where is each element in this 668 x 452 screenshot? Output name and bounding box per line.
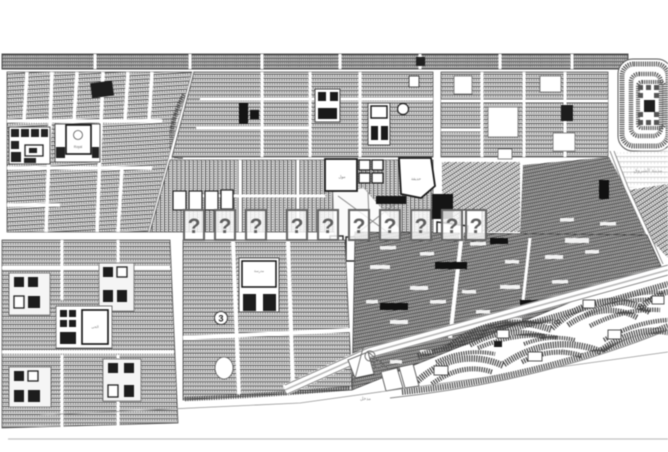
svg-text:?: ? — [188, 215, 201, 238]
svg-text:?: ? — [250, 215, 263, 238]
svg-text:?: ? — [322, 215, 335, 238]
svg-text:مدخل: مدخل — [360, 396, 372, 401]
svg-text:مدخل: مدخل — [560, 348, 572, 353]
svg-text:?: ? — [446, 215, 459, 238]
svg-text:?: ? — [353, 215, 366, 238]
svg-text:?: ? — [470, 215, 483, 238]
svg-text:مدرسة: مدرسة — [254, 269, 264, 273]
svg-text:مول: مول — [338, 174, 345, 179]
svg-text:?: ? — [384, 215, 397, 238]
svg-text:الحى: الحى — [91, 324, 98, 329]
svg-text:3: 3 — [218, 314, 223, 324]
svg-text:Royal: Royal — [74, 145, 82, 149]
svg-text:?: ? — [219, 215, 232, 238]
svg-text:حديقة: حديقة — [411, 176, 421, 181]
svg-text:مدينة الشروق: مدينة الشروق — [634, 168, 663, 174]
svg-text:?: ? — [291, 215, 304, 238]
svg-text:?: ? — [415, 215, 428, 238]
